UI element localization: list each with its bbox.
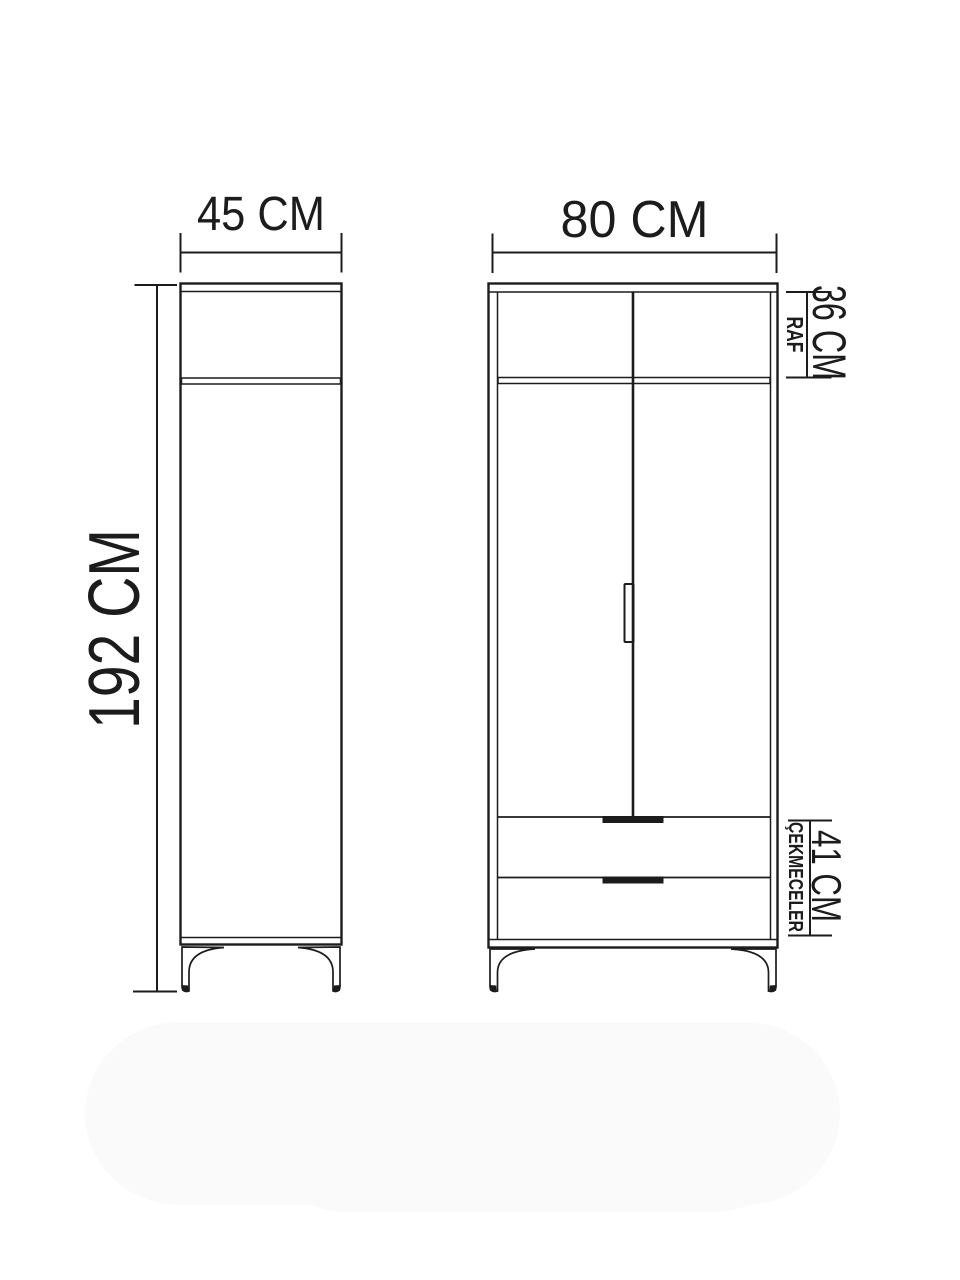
front-view bbox=[489, 284, 778, 992]
dimension-shelf-section: 36 CM RAF bbox=[782, 285, 856, 380]
diagram-canvas: 45 CM 80 CM 192 CM 36 CM RAF 41 CM ÇEKME… bbox=[0, 0, 960, 1280]
drawers-name-label: ÇEKMECELER bbox=[784, 822, 807, 932]
side-shelf-board bbox=[182, 378, 341, 384]
dimension-front-width: 80 CM bbox=[493, 191, 777, 273]
side-leg-right bbox=[298, 947, 340, 992]
dimension-height: 192 CM bbox=[75, 285, 177, 992]
side-leg-left-foot bbox=[181, 985, 188, 991]
wardrobe-technical-drawing: 45 CM 80 CM 192 CM 36 CM RAF 41 CM ÇEKME… bbox=[0, 0, 960, 1280]
floor-shadow-shape-2 bbox=[260, 1040, 800, 1212]
shelf-name-label: RAF bbox=[782, 317, 808, 353]
height-label: 192 CM bbox=[75, 529, 155, 729]
side-leg-right-foot bbox=[333, 985, 340, 991]
side-width-label: 45 CM bbox=[197, 188, 325, 241]
side-view bbox=[181, 284, 342, 992]
front-leg-right bbox=[731, 949, 776, 992]
front-leg-left-foot bbox=[489, 985, 496, 991]
drawer-handle-top bbox=[603, 816, 664, 823]
front-leg-left bbox=[490, 949, 535, 992]
front-leg-right-foot bbox=[769, 985, 776, 991]
dimension-side-width: 45 CM bbox=[181, 188, 342, 273]
drawer-handle-bottom bbox=[603, 877, 664, 884]
floor-shadow bbox=[85, 1022, 840, 1212]
drawers-size-label: 41 CM bbox=[803, 830, 850, 922]
shelf-size-label: 36 CM bbox=[803, 285, 856, 380]
front-width-label: 80 CM bbox=[561, 191, 709, 249]
side-leg-left bbox=[182, 947, 224, 992]
dimension-drawer-section: 41 CM ÇEKMECELER bbox=[784, 821, 850, 936]
